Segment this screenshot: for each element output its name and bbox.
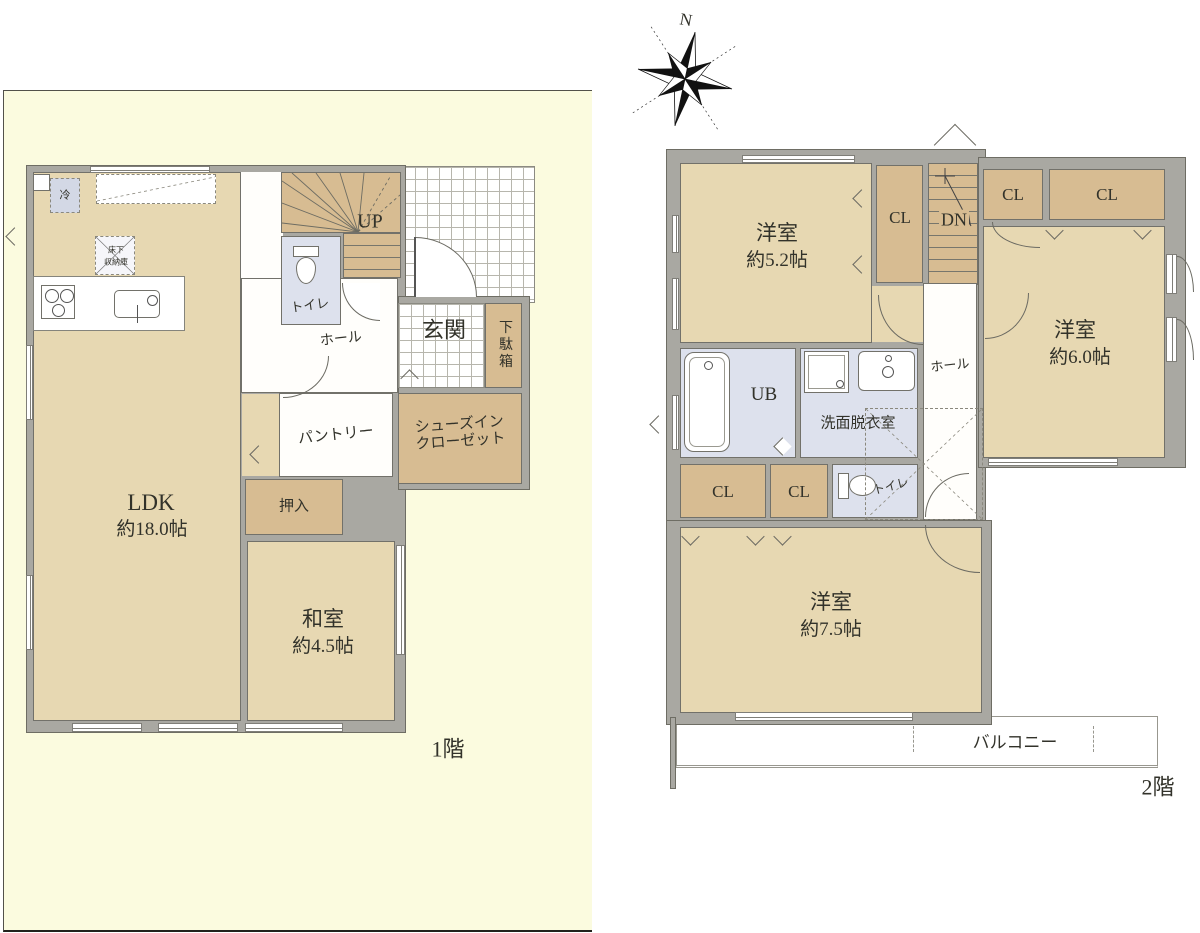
window	[245, 723, 343, 732]
casement-arc	[1177, 319, 1194, 360]
floor2-caption: 2階	[1141, 774, 1174, 799]
stairs-down-label: DN	[939, 210, 969, 231]
balcony-wall-stub	[670, 717, 676, 789]
ldk-extension	[242, 394, 279, 476]
bathtub	[684, 352, 730, 452]
compass-rose: N	[630, 4, 750, 134]
bedroom-small-size-label: 約5.2帖	[746, 250, 808, 272]
window	[988, 458, 1118, 466]
toilet2-tank	[838, 473, 849, 499]
closet-bottom-1-label: CL	[712, 482, 734, 502]
stove	[41, 285, 75, 319]
stairs-up-upper	[281, 172, 401, 233]
bedroom-large-name-label: 洋室	[810, 590, 852, 614]
floorplan-page: { "colors": { "panel_yellow": "#fbfbdf",…	[0, 0, 1200, 933]
washbasin	[858, 351, 915, 391]
window	[742, 155, 855, 163]
closet-bottom-2-label: CL	[788, 482, 810, 502]
floor-storage-box: 床下 収納庫	[95, 236, 135, 275]
window	[26, 345, 33, 420]
window	[1166, 254, 1177, 294]
washitsu-size-label: 約4.5帖	[292, 636, 354, 658]
washroom-label: 洗面脱衣室	[820, 415, 895, 432]
balcony-divider	[1093, 726, 1094, 752]
closet-tall-label: CL	[889, 208, 911, 228]
toilet1-tank	[293, 246, 319, 257]
window	[1166, 317, 1177, 362]
bedroom-mid-size-label: 約6.0帖	[1049, 347, 1111, 369]
floor-storage-label-1: 床下	[108, 245, 124, 254]
genkan-label: 玄関	[422, 317, 466, 342]
balcony-divider	[913, 726, 914, 752]
ldk-size-label: 約18.0帖	[116, 519, 187, 541]
window	[672, 278, 679, 330]
closet-top-2-label: CL	[1096, 185, 1118, 205]
compass-star-icon	[626, 20, 745, 139]
stairs-up-label: UP	[357, 211, 383, 234]
floor1-caption: 1階	[431, 736, 464, 761]
window	[26, 575, 33, 650]
stairs-up-lower	[343, 233, 401, 278]
room-ldk	[33, 172, 241, 721]
washitsu-name-label: 和室	[302, 607, 344, 631]
balcony-label: バルコニー	[973, 733, 1058, 753]
corner-pillar	[33, 174, 50, 191]
window	[158, 723, 238, 732]
bedroom-mid-name-label: 洋室	[1054, 318, 1096, 342]
window	[672, 215, 679, 253]
vent-arrow-mark	[649, 415, 667, 433]
kitchen-sink	[114, 290, 160, 318]
hanging-cupboard	[96, 174, 216, 204]
oshiire-label: 押入	[279, 498, 309, 515]
ldk-name-label: LDK	[127, 490, 174, 516]
unit-bath-label: UB	[751, 384, 777, 406]
shower-unit	[804, 351, 849, 393]
entrance-door-leaf	[414, 237, 416, 297]
getabako-label: 下駄箱	[496, 320, 512, 371]
casement-arc	[1177, 256, 1194, 292]
window	[672, 395, 679, 450]
refrigerator-label: 冷	[60, 190, 71, 203]
shoes-in-closet-label: シューズイン クローゼット	[414, 414, 506, 455]
window	[72, 723, 142, 732]
window	[735, 712, 913, 721]
floor-storage-label-2: 収納庫	[104, 257, 128, 266]
bedroom-small-name-label: 洋室	[756, 221, 798, 245]
hall1-upper-strip	[241, 172, 283, 278]
window	[396, 545, 405, 655]
closet-top-1-label: CL	[1002, 185, 1024, 205]
bedroom-large-size-label: 約7.5帖	[800, 619, 862, 641]
window	[90, 166, 210, 173]
